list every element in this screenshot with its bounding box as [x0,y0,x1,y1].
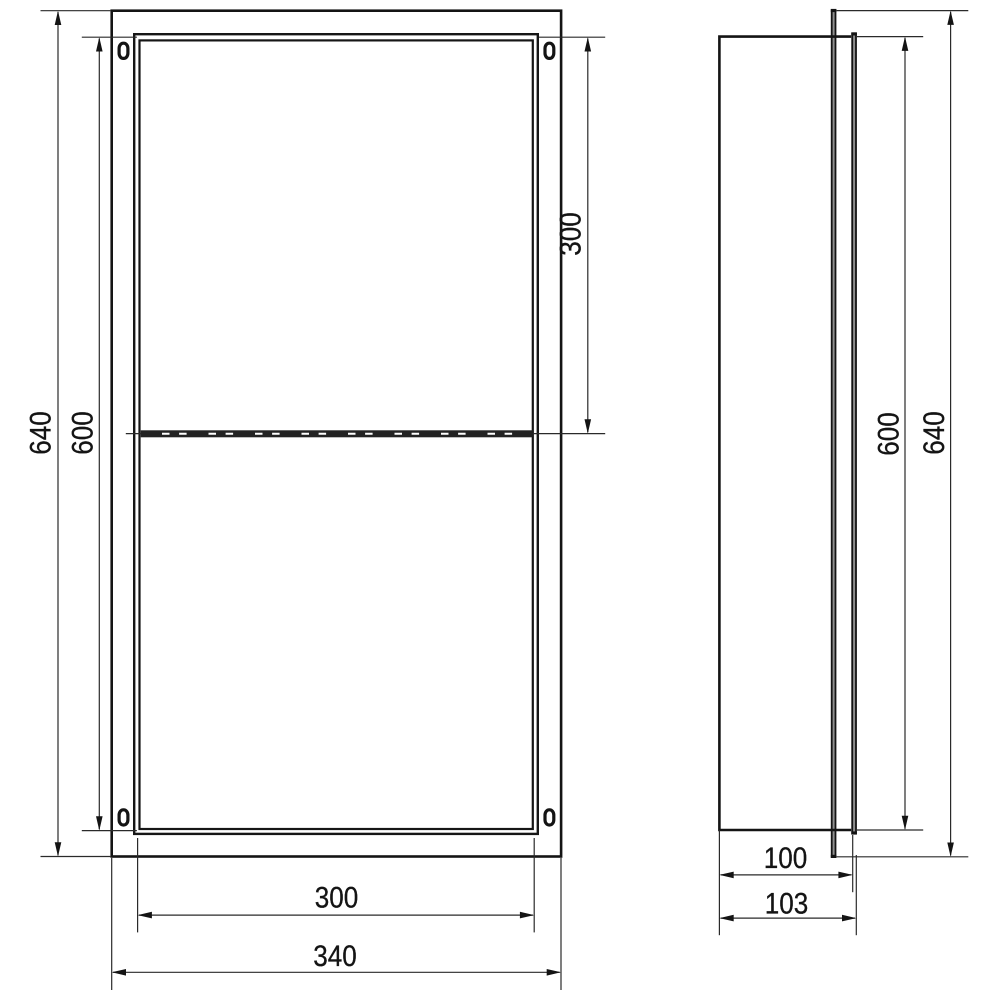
svg-text:103: 103 [765,887,809,920]
svg-text:340: 340 [313,940,357,973]
svg-text:600: 600 [872,412,905,456]
svg-text:100: 100 [764,841,808,874]
svg-text:300: 300 [315,881,359,914]
svg-text:640: 640 [24,411,57,455]
svg-text:300: 300 [554,212,587,256]
svg-text:640: 640 [918,411,951,455]
svg-text:600: 600 [66,411,99,455]
